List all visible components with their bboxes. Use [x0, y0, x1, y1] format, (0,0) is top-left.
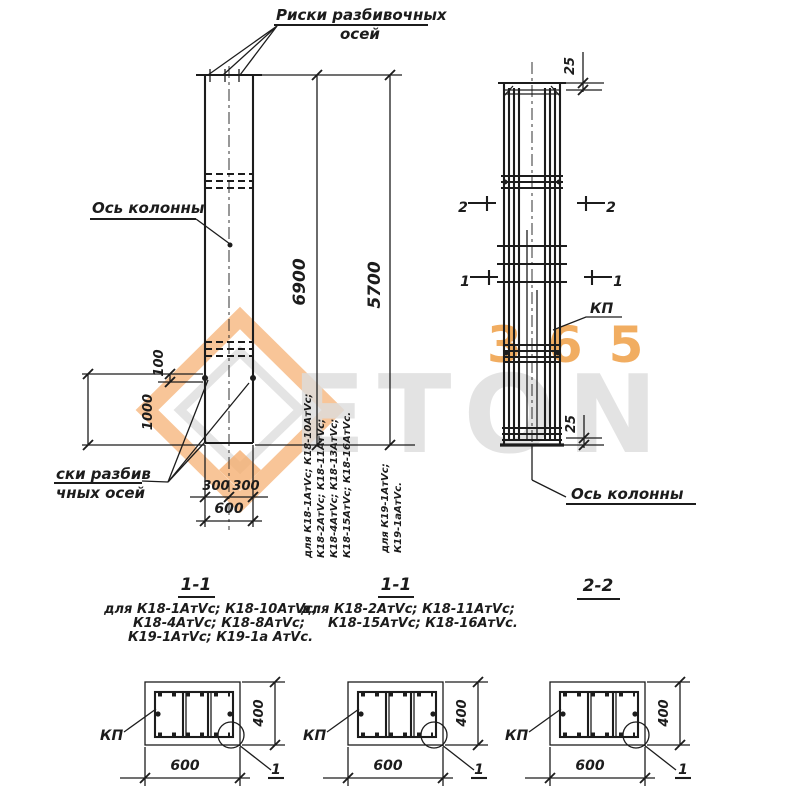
dim-600-label: 600 [373, 758, 402, 774]
applicability-line: К18-4АтVс; К18-13АтVс; [329, 419, 340, 558]
detail-1-label: 1 [678, 762, 688, 778]
applicability-line: К18-2АтVс; К18-11АтVс; [316, 419, 327, 558]
applicability-line: для К18-1АтVс; К18-10АтVс; [303, 393, 314, 559]
dim-300-label-b: 300 [232, 479, 259, 494]
section-title-b: 1-1 [381, 575, 412, 595]
cross-section-a: КП 1 400 600 [100, 677, 285, 786]
section-title-a: 1-1 [181, 575, 212, 595]
dim-400-label: 400 [252, 699, 267, 727]
dim-600-label: 600 [214, 501, 243, 517]
section-mark-1-right: 1 [613, 274, 623, 290]
dim-100-label: 100 [152, 349, 167, 376]
top-axis-marks-label: Риски разбивочных осей [208, 6, 448, 75]
leader-line [644, 745, 676, 770]
section-title-c: 2-2 [583, 576, 614, 596]
applicability-line: К18-15АтVс; К18-16АтVс. [342, 412, 353, 558]
leader-line [239, 745, 271, 770]
axis-left-text: Ось колонны [92, 199, 205, 217]
leader-line [124, 709, 156, 732]
bottom-axis-label-line2: чных осей [56, 484, 145, 502]
dim-5700-label: 5700 [365, 261, 385, 308]
detail-1-label: 1 [271, 762, 281, 778]
dim-25-top-label: 25 [563, 57, 578, 75]
dim-400-label: 400 [455, 699, 470, 727]
dim-25-bottom-label: 25 [564, 415, 579, 433]
kp-label: КП [100, 728, 123, 744]
cross-section-b: КП 1 400 600 [303, 677, 488, 786]
watermark: ETON 365 [147, 316, 670, 502]
cover-dim-top: 25 [560, 52, 604, 95]
applicability-line: К19-1аАтVс. [393, 482, 404, 553]
detail-1-label: 1 [474, 762, 484, 778]
dim-400-label: 400 [657, 699, 672, 727]
caption-line: для К18-2АтVс; К18-11АтVс; [300, 602, 515, 617]
bottom-axis-label-line1: ски разбив [56, 465, 151, 483]
caption-line: К18-4АтVс; К18-8АтVс; [133, 616, 305, 631]
leader-line [442, 745, 474, 770]
leader-line [223, 26, 277, 75]
leader-line [240, 26, 277, 75]
drawing-canvas: ETON 365 Риски разбивочных осей Ось кол [0, 0, 800, 800]
dim-1000-label: 1000 [141, 394, 156, 430]
top-axis-label-line1: Риски разбивочных [276, 6, 448, 24]
kp-label: КП [505, 728, 528, 744]
leader-line [208, 26, 277, 75]
section-mark-1-left: 1 [460, 274, 470, 290]
cross-section-c: КП 1 400 600 [505, 677, 691, 786]
column-drawing: ETON 365 Риски разбивочных осей Ось кол [0, 0, 800, 800]
leader-line [196, 219, 230, 244]
section-titles: 1-1 1-1 2-2 [178, 575, 620, 599]
dim-6900-label: 6900 [290, 258, 310, 305]
kp-label: КП [590, 301, 613, 317]
caption-line: К18-15АтVс; К18-16АтVс. [328, 616, 518, 631]
leader-line [327, 709, 359, 732]
section-caption-a: для К18-1АтVс; К18-10АтVс; К18-4АтVс; К1… [103, 602, 318, 645]
axis-right-text: Ось колонны [571, 485, 684, 503]
applicability-line: для К19-1АтVс; [380, 463, 391, 554]
section-mark-2-right: 2 [606, 200, 616, 216]
dim-600-label: 600 [170, 758, 199, 774]
leader-line [529, 709, 561, 732]
axis-label-left: Ось колонны [90, 199, 233, 248]
top-axis-label-line2: осей [340, 25, 380, 43]
kp-label: КП [303, 728, 326, 744]
section-caption-b: для К18-2АтVс; К18-11АтVс; К18-15АтVс; К… [300, 602, 518, 631]
caption-line: К19-1АтVс; К19-1а АтVс. [128, 630, 313, 645]
dim-600-label: 600 [575, 758, 604, 774]
dim-300-label-a: 300 [202, 479, 229, 494]
section-mark-2-left: 2 [458, 200, 468, 216]
caption-line: для К18-1АтVс; К18-10АтVс; [103, 602, 318, 617]
section-cut-marks: 2 2 1 1 [458, 196, 623, 290]
